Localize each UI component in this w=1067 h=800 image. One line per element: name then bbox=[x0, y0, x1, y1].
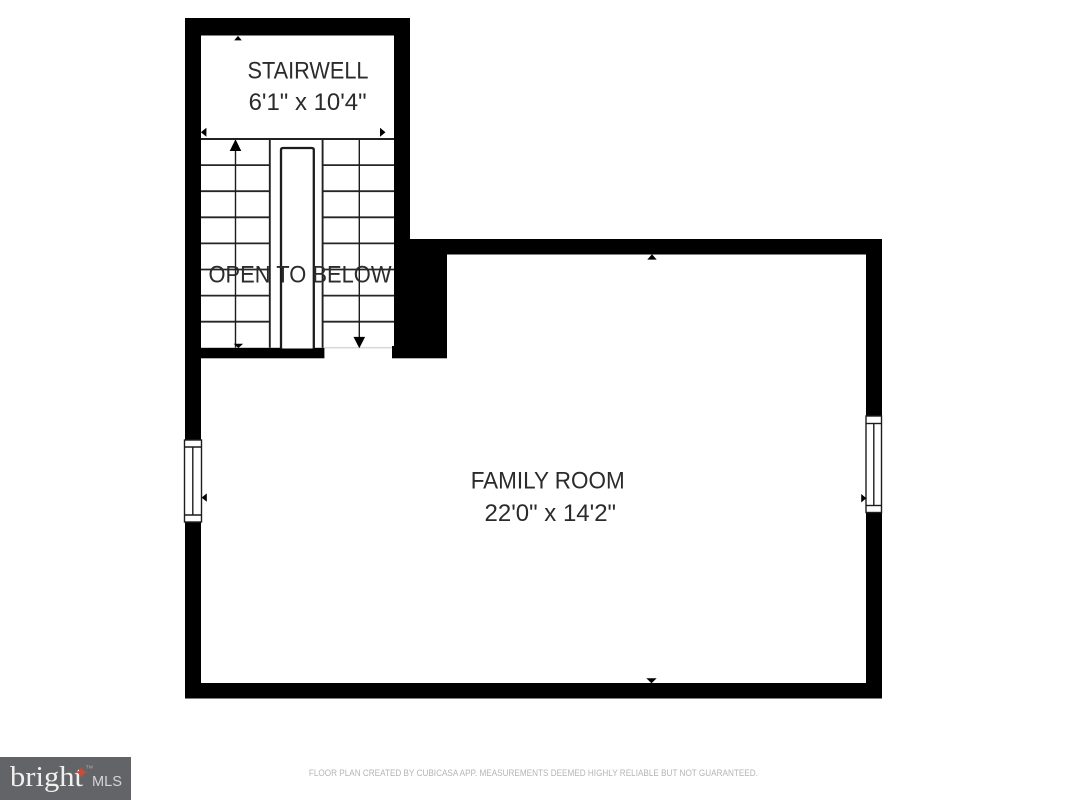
svg-text:FLOOR PLAN CREATED BY CUBICASA: FLOOR PLAN CREATED BY CUBICASA APP. MEAS… bbox=[309, 768, 758, 779]
svg-text:STAIRWELL: STAIRWELL bbox=[248, 58, 369, 85]
svg-text:TM: TM bbox=[86, 764, 93, 769]
svg-text:6'1" x 10'4": 6'1" x 10'4" bbox=[249, 89, 367, 116]
svg-text:bright: bright bbox=[10, 761, 83, 793]
svg-text:FAMILY ROOM: FAMILY ROOM bbox=[471, 468, 625, 495]
svg-text:MLS: MLS bbox=[92, 774, 122, 790]
svg-text:OPEN TO BELOW: OPEN TO BELOW bbox=[209, 261, 393, 288]
svg-text:22'0" x 14'2": 22'0" x 14'2" bbox=[485, 500, 617, 527]
